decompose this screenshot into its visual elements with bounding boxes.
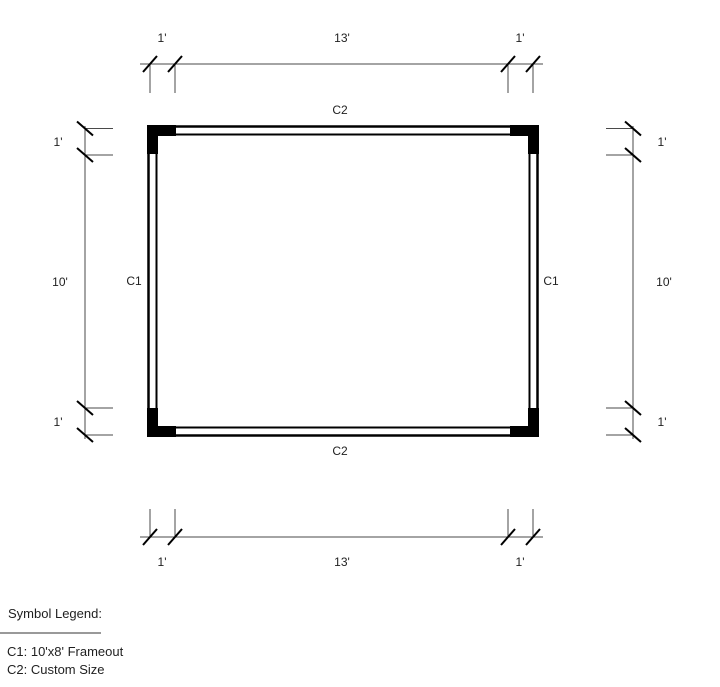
dim-label-right-top: 1' xyxy=(658,135,667,149)
dimension-bottom: 1' 13' 1' xyxy=(140,509,543,569)
dim-label-top-left: 1' xyxy=(158,31,167,45)
legend-entry-c2: C2: Custom Size xyxy=(7,661,123,679)
symbol-label-c2-top: C2 xyxy=(332,103,348,117)
legend-entries: C1: 10'x8' Frameout C2: Custom Size xyxy=(7,643,123,679)
dimension-top: 1' 13' 1' xyxy=(140,31,543,93)
frameout-walls xyxy=(147,125,539,437)
legend-title: Symbol Legend: xyxy=(8,606,102,621)
dim-label-bottom-mid: 13' xyxy=(334,555,350,569)
dim-label-right-bottom: 1' xyxy=(658,415,667,429)
dim-label-top-mid: 13' xyxy=(334,31,350,45)
corner-block-top-right xyxy=(510,125,539,154)
symbol-label-c1-left: C1 xyxy=(126,274,142,288)
symbol-label-c1-right: C1 xyxy=(543,274,559,288)
dim-label-left-bottom: 1' xyxy=(54,415,63,429)
legend-divider xyxy=(0,632,101,634)
legend-entry-c1: C1: 10'x8' Frameout xyxy=(7,643,123,661)
dimension-left: 1' 10' 1' xyxy=(52,122,113,443)
corner-block-top-left xyxy=(147,125,176,154)
dimension-right: 1' 10' 1' xyxy=(606,122,672,443)
dim-label-right-mid: 10' xyxy=(656,275,672,289)
floor-plan-drawing: 1' 13' 1' 1' 13' 1' xyxy=(0,0,720,687)
dim-label-bottom-left: 1' xyxy=(158,555,167,569)
dim-label-bottom-right: 1' xyxy=(516,555,525,569)
dim-label-left-mid: 10' xyxy=(52,275,68,289)
frame-outer-outline xyxy=(149,127,538,436)
corner-block-bottom-left xyxy=(147,408,176,437)
frame-inner-outline xyxy=(157,135,530,428)
corner-block-bottom-right xyxy=(510,408,539,437)
floor-plan-page: 1' 13' 1' 1' 13' 1' xyxy=(0,0,720,687)
symbol-label-c2-bottom: C2 xyxy=(332,444,348,458)
dim-label-left-top: 1' xyxy=(54,135,63,149)
dim-label-top-right: 1' xyxy=(516,31,525,45)
